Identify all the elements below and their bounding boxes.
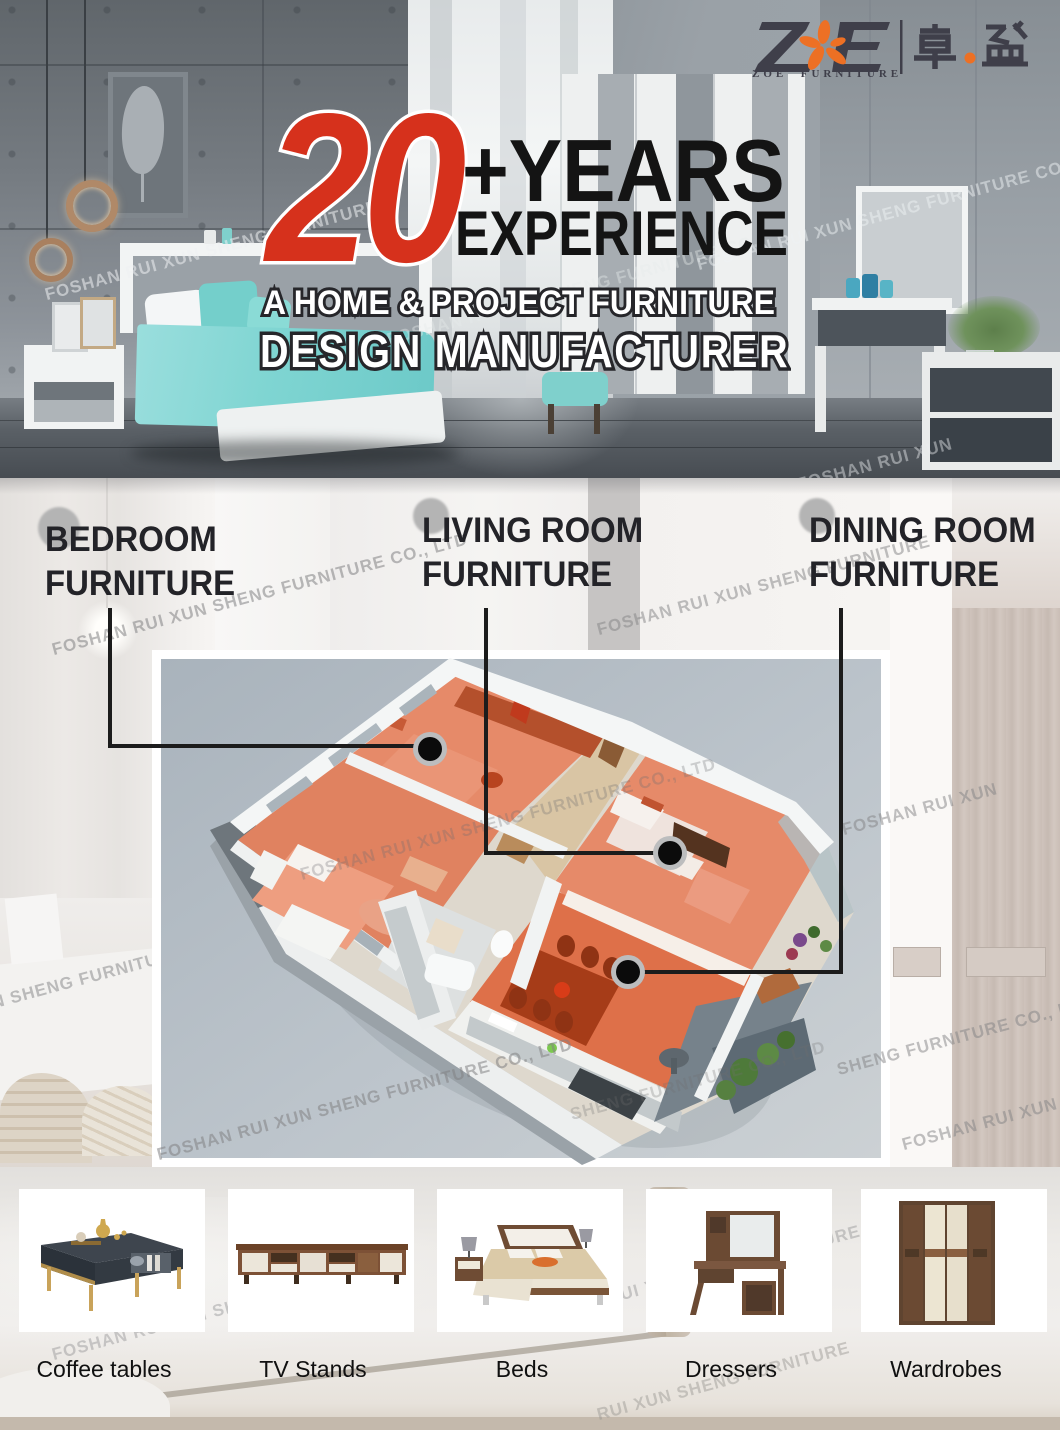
svg-text:ZOE FURNITURE: ZOE FURNITURE	[752, 68, 902, 78]
